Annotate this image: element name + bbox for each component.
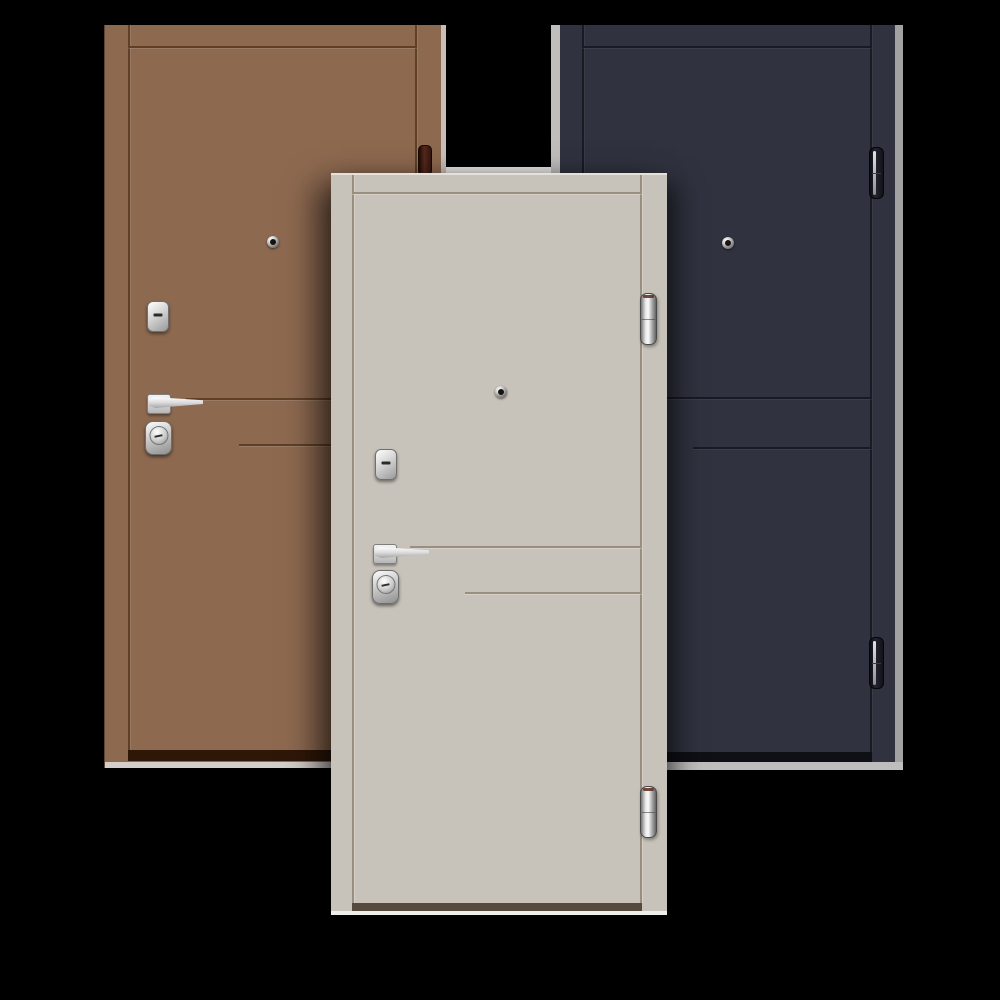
brown-door-keyhole-escutcheon bbox=[147, 301, 169, 332]
beige-door-bottom-recess bbox=[352, 903, 642, 911]
navy-door-right-edge bbox=[895, 25, 903, 770]
brown-door-cylinder-lock bbox=[145, 421, 172, 455]
beige-door bbox=[331, 173, 667, 915]
beige-door-cylinder-knob bbox=[376, 575, 395, 594]
beige-door-lower-groove bbox=[465, 592, 642, 594]
beige-door-handle-groove bbox=[410, 546, 642, 548]
navy-door-lower-groove bbox=[693, 447, 872, 449]
navy-door-mid-groove bbox=[631, 397, 872, 399]
brown-door-top-groove bbox=[128, 46, 417, 48]
navy-door-lower-hinge bbox=[869, 637, 884, 689]
beige-door-top-groove bbox=[352, 192, 642, 194]
beige-door-keyhole-escutcheon bbox=[375, 449, 397, 480]
brown-door-left-groove bbox=[128, 25, 130, 750]
beige-door-lever-handle bbox=[375, 547, 429, 558]
beige-door-left-groove bbox=[352, 175, 354, 903]
navy-door-upper-hinge bbox=[869, 147, 884, 199]
brown-door-peephole bbox=[267, 236, 279, 248]
beige-door-top-edge bbox=[331, 173, 667, 175]
beige-door-peephole bbox=[495, 386, 507, 398]
beige-door-cylinder-lock bbox=[372, 570, 399, 604]
brown-door-cylinder-knob bbox=[149, 426, 168, 445]
brown-door-hinge bbox=[418, 145, 432, 175]
product-image-stage bbox=[0, 0, 1000, 1000]
beige-door-lower-hinge bbox=[640, 786, 657, 838]
navy-door-top-groove bbox=[582, 46, 872, 48]
beige-door-bottom-edge bbox=[331, 911, 667, 915]
beige-door-upper-hinge bbox=[640, 293, 657, 345]
navy-door-peephole bbox=[722, 237, 734, 249]
